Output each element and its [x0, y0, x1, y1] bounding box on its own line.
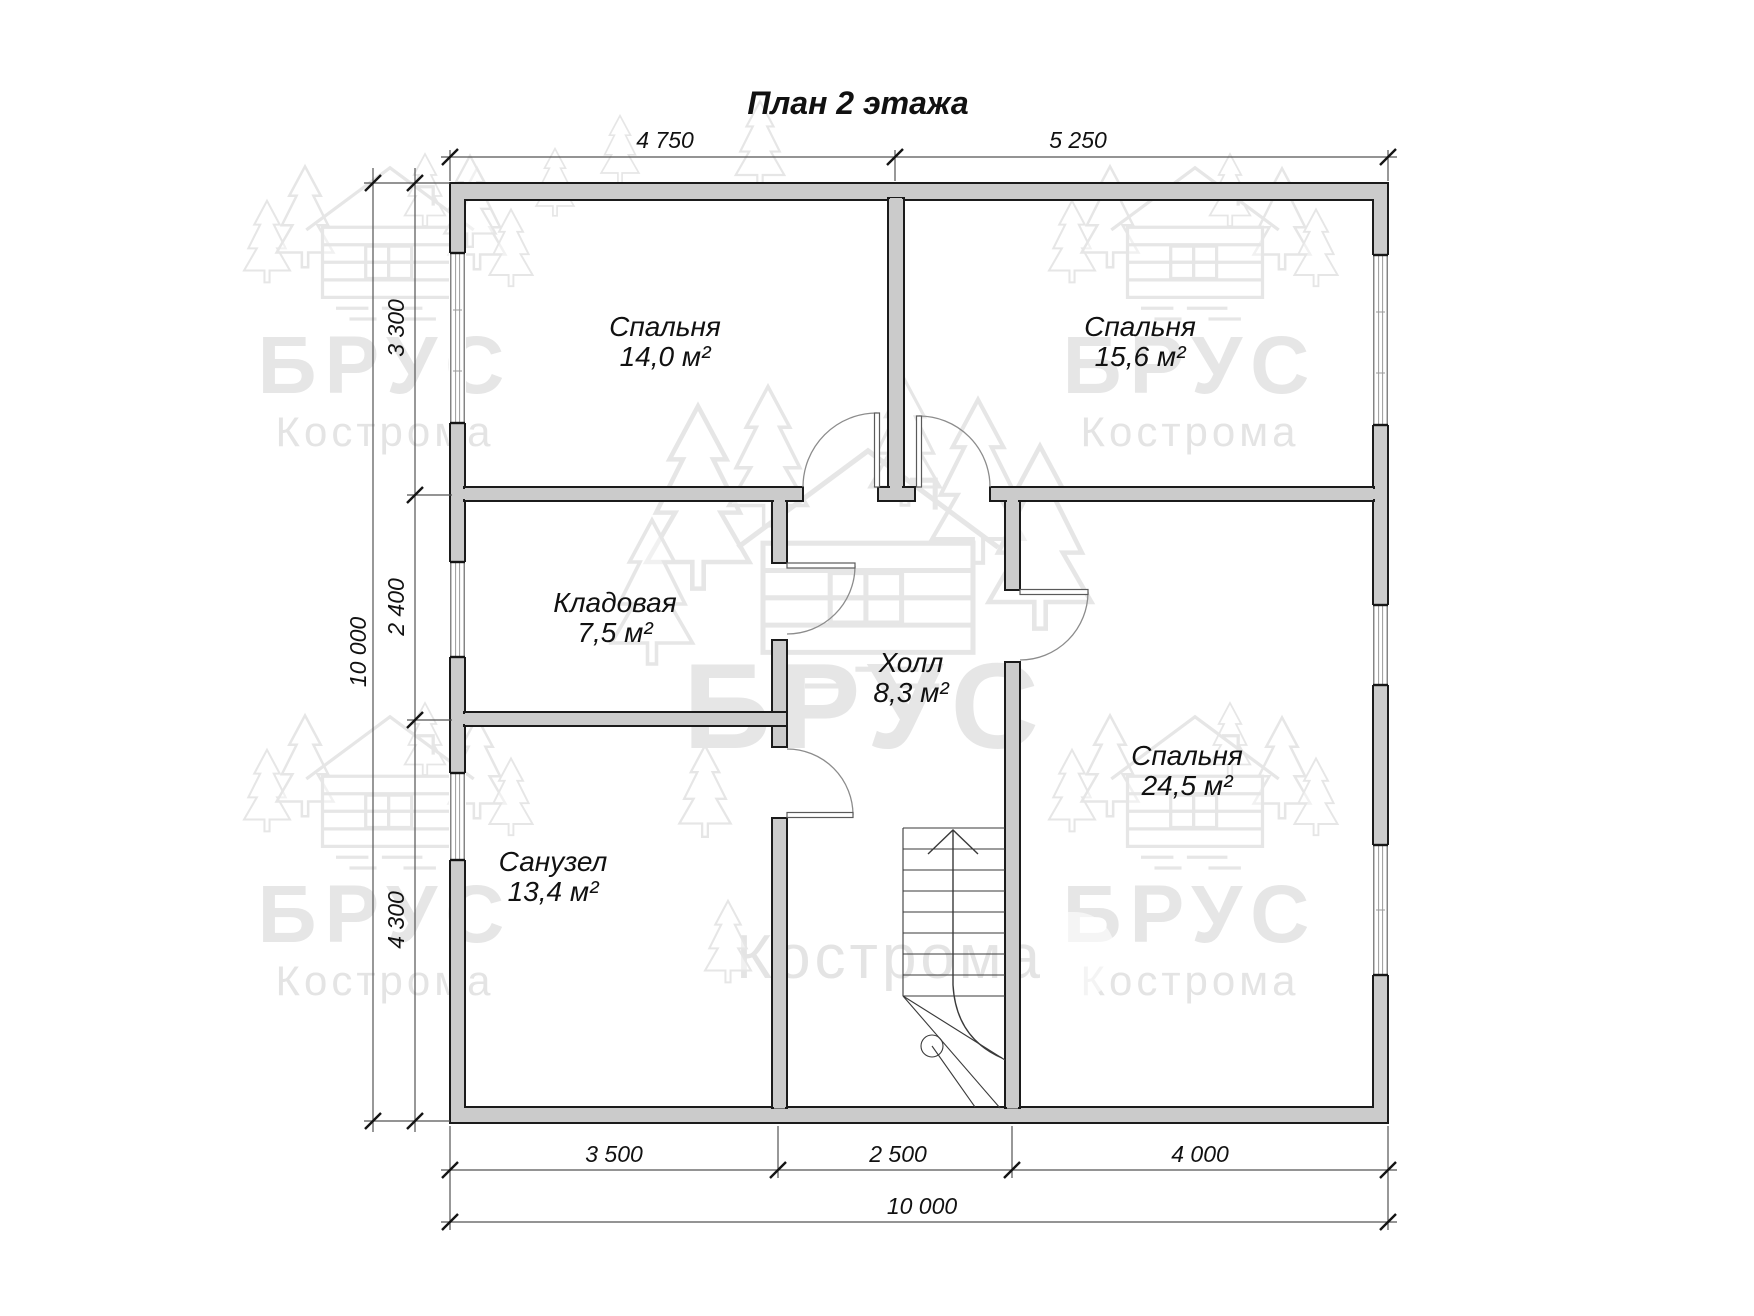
wall-bath-right: [772, 818, 787, 1108]
svg-text:8,3 м²: 8,3 м²: [873, 677, 950, 708]
dim-bottom-total: 10 000: [887, 1193, 958, 1219]
window-bathroom: [449, 773, 466, 860]
dim-top-1: 4 750: [636, 127, 694, 153]
watermark-layer: БРУС Кострома: [244, 101, 1338, 1006]
dimension-bottom: 3 500 2 500 4 000 10 000: [441, 1126, 1397, 1230]
window-bedroom-3-lower: [1372, 845, 1389, 975]
dim-bottom-3: 4 000: [1171, 1141, 1229, 1167]
dim-left-total: 10 000: [345, 617, 371, 688]
dim-bottom-1: 3 500: [585, 1141, 643, 1167]
dim-left-2: 2 400: [383, 578, 409, 637]
room-label-bedroom-3: Спальня 24,5 м²: [1131, 740, 1243, 801]
wall-a-left: [464, 487, 803, 501]
dim-left-3: 4 300: [383, 891, 409, 949]
wall-b-storage-bath: [464, 712, 787, 726]
svg-text:Спальня: Спальня: [1131, 740, 1243, 771]
svg-text:Спальня: Спальня: [609, 311, 721, 342]
window-bedroom-3-upper: [1372, 605, 1389, 685]
watermark-center-group: БРУС Кострома: [612, 380, 1116, 1000]
room-label-bedroom-1: Спальня 14,0 м²: [609, 311, 721, 372]
watermark-brand-text-center: БРУС: [683, 638, 1046, 774]
svg-text:15,6 м²: 15,6 м²: [1095, 341, 1187, 372]
window-bedroom-2: [1372, 255, 1389, 425]
room-label-bedroom-2: Спальня 15,6 м²: [1084, 311, 1196, 372]
dim-left-1: 3 300: [383, 299, 409, 357]
wall-bedrooms-divider: [888, 198, 904, 487]
wall-a-right: [990, 487, 1374, 501]
floor-plan-page: БРУС Кострома БРУС Кострома: [0, 0, 1754, 1316]
wall-storage-right-top: [772, 501, 787, 563]
dim-top-2: 5 250: [1049, 127, 1107, 153]
window-storage: [449, 562, 466, 657]
room-label-hall: Холл 8,3 м²: [873, 647, 950, 708]
svg-text:13,4 м²: 13,4 м²: [508, 876, 600, 907]
svg-text:Санузел: Санузел: [499, 846, 608, 877]
dimension-top: 4 750 5 250: [441, 127, 1397, 181]
wall-storage-right-mid: [772, 640, 787, 747]
room-label-bathroom: Санузел 13,4 м²: [499, 846, 608, 907]
page-title: План 2 этажа: [747, 85, 968, 121]
wall-hall-bedroom3-bottom: [1005, 662, 1020, 1108]
svg-text:14,0 м²: 14,0 м²: [620, 341, 712, 372]
svg-text:7,5 м²: 7,5 м²: [577, 617, 654, 648]
dim-bottom-2: 2 500: [868, 1141, 927, 1167]
svg-text:Холл: Холл: [878, 647, 944, 678]
svg-text:24,5 м²: 24,5 м²: [1141, 770, 1234, 801]
svg-text:Кладовая: Кладовая: [553, 587, 676, 618]
window-bedroom-1: [449, 253, 466, 423]
wall-divider-foot: [878, 487, 915, 501]
floor-plan-canvas: БРУС Кострома БРУС Кострома: [0, 0, 1754, 1316]
svg-text:Спальня: Спальня: [1084, 311, 1196, 342]
wall-hall-bedroom3-top: [1005, 501, 1020, 590]
